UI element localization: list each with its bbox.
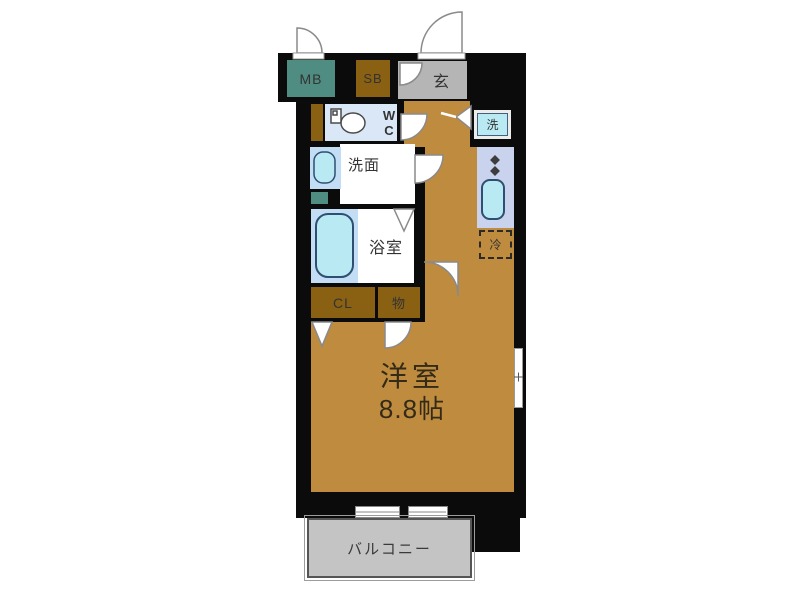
washer-area-door-leaf bbox=[441, 113, 456, 117]
meter-box-door-swing bbox=[297, 28, 322, 53]
entry-door-swing bbox=[421, 12, 462, 53]
washbasin-icon bbox=[314, 152, 335, 183]
wc-door-swing bbox=[401, 114, 427, 140]
washer-area-door bbox=[456, 106, 471, 129]
main-room-door-swing bbox=[424, 262, 458, 296]
entry-door-threshold bbox=[418, 53, 465, 59]
toilet-bowl-icon bbox=[341, 113, 365, 133]
symbols-overlay bbox=[0, 0, 800, 600]
stove-burner-icon-2 bbox=[490, 166, 500, 176]
storage-door-swing bbox=[385, 322, 411, 348]
meter-box-door-threshold bbox=[293, 53, 324, 59]
toilet-handle-icon bbox=[333, 111, 337, 115]
window-right-cross bbox=[514, 373, 523, 382]
genkan-door-swing bbox=[400, 63, 422, 85]
bathtub-icon bbox=[316, 214, 353, 277]
floor-plan: MB SB 玄 W C 洗面 浴室 CL 物 洗 冷 バルコニー bbox=[0, 0, 800, 600]
stove-burner-icon-1 bbox=[490, 155, 500, 165]
bathroom-folding-door bbox=[394, 209, 414, 231]
washroom-door-swing bbox=[415, 155, 443, 183]
closet-folding-door bbox=[312, 322, 332, 346]
kitchen-sink-icon bbox=[482, 180, 504, 219]
